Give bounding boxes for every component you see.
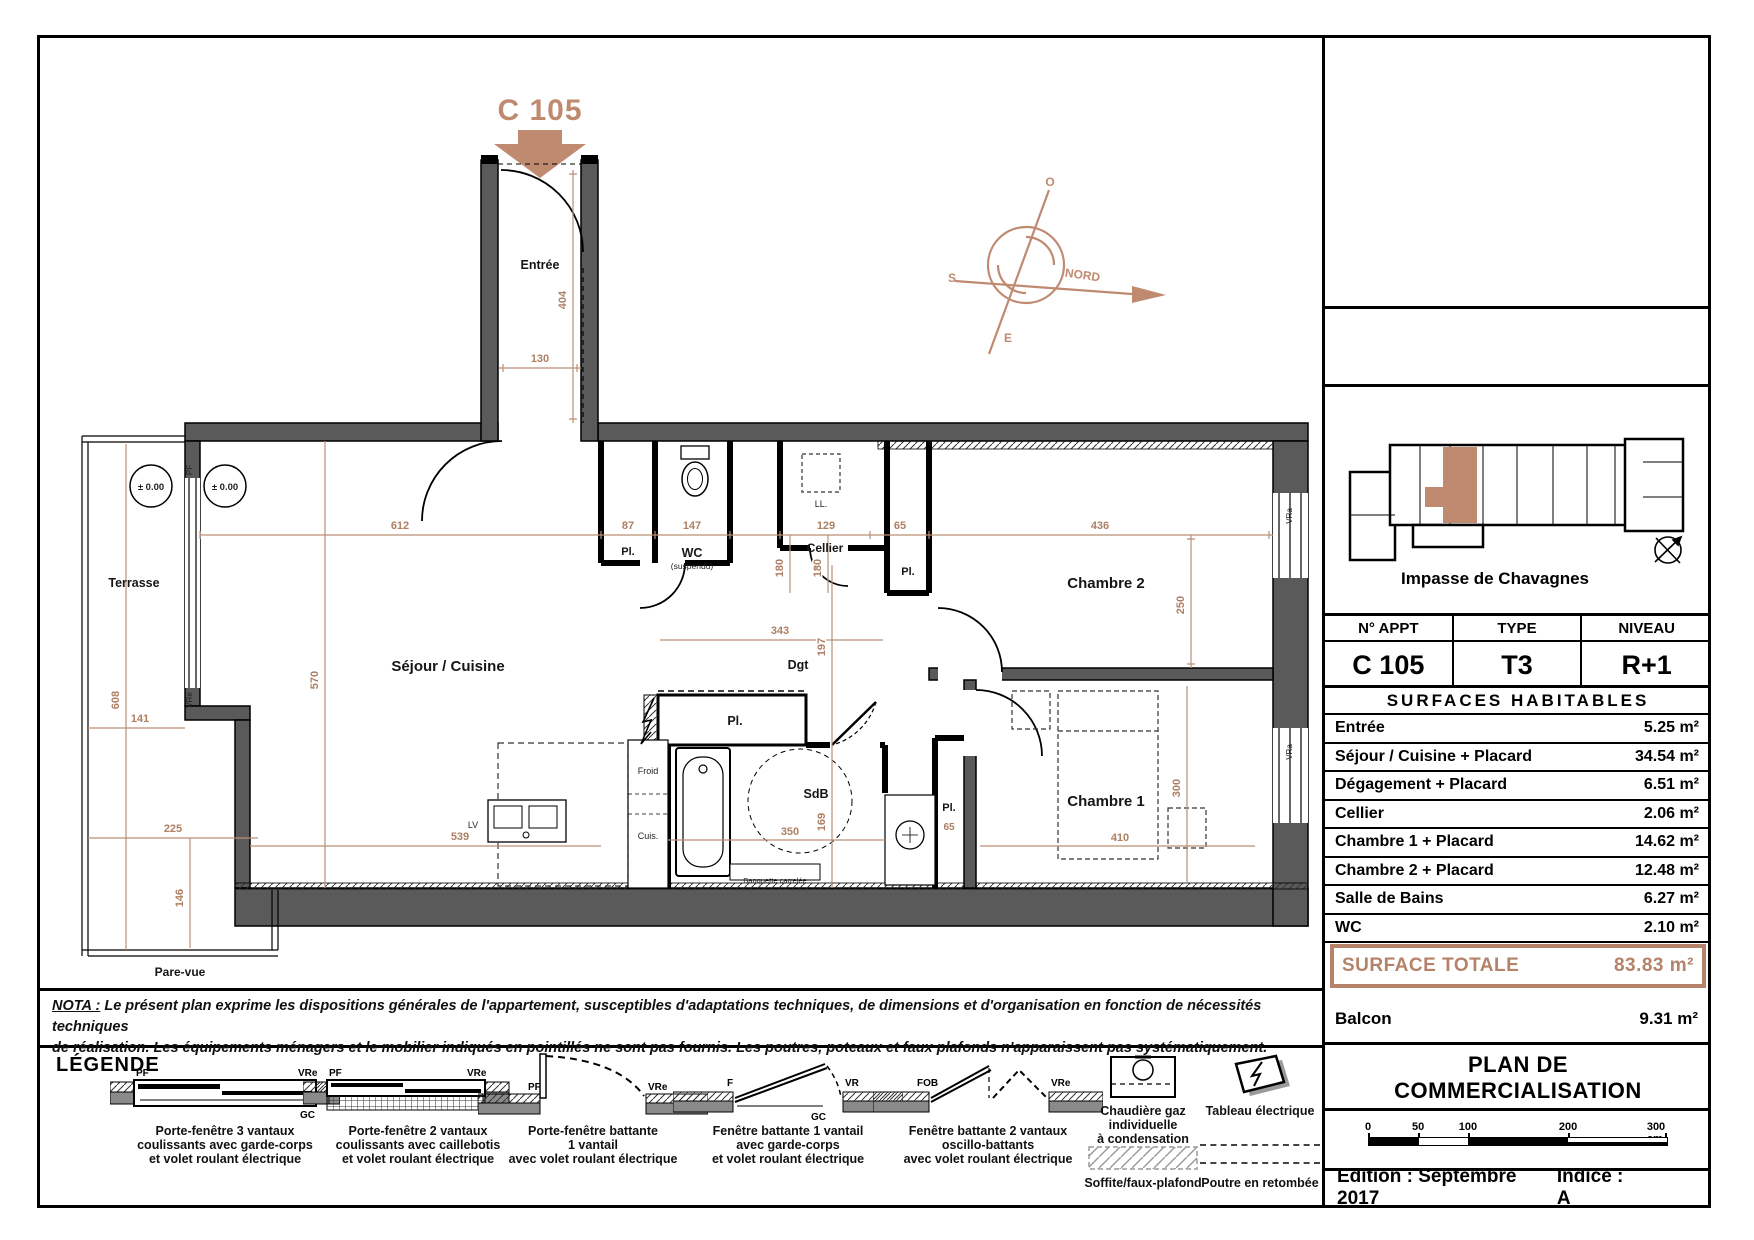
legend-pf-label: PF bbox=[329, 1068, 342, 1079]
scale-bar-section: 0 50 100 200 300 cm bbox=[1325, 1111, 1711, 1171]
legend-caption-electrical: Tableau électrique bbox=[1185, 1104, 1335, 1118]
dim-410: 410 bbox=[1111, 832, 1129, 844]
surface-total-box: SURFACE TOTALE 83.83 m² bbox=[1325, 941, 1711, 991]
site-plan-drawing bbox=[1325, 387, 1711, 567]
dim-65b: 65 bbox=[943, 822, 955, 833]
windows: PF VRe VRa VRa bbox=[185, 465, 1308, 823]
legend-f-label: F bbox=[727, 1078, 733, 1089]
label-cuisine: Cuis. bbox=[638, 831, 659, 841]
legend-beam-dash-1 bbox=[1200, 1144, 1320, 1146]
scale-tick-100: 100 bbox=[1459, 1121, 1477, 1133]
edition-indice: Indice : A bbox=[1557, 1166, 1639, 1210]
washer-icon bbox=[802, 454, 840, 492]
plan-sheet: C 105 O S E NORD bbox=[37, 35, 1711, 1208]
title-block-panel: Impasse de Chavagnes N° APPT TYPE NIVEAU… bbox=[1322, 38, 1708, 1205]
surface-row: Chambre 2 + Placard12.48 m² bbox=[1325, 858, 1711, 887]
dim-146: 146 bbox=[174, 889, 186, 907]
room-label-pl-wc: Pl. bbox=[621, 546, 634, 558]
kitchen-units bbox=[488, 740, 668, 888]
floorplan-drawing: C 105 O S E NORD bbox=[40, 38, 1322, 988]
level-marker: ± 0.00 bbox=[130, 465, 172, 507]
room-labels: Entrée Terrasse Pare-vue Séjour / Cuisin… bbox=[108, 258, 1144, 979]
nota-disclaimer: NOTA : Le présent plan exprime les dispo… bbox=[40, 988, 1322, 1048]
balcony-label: Balcon bbox=[1335, 1009, 1392, 1029]
legend-beam-dash-2 bbox=[1200, 1162, 1320, 1164]
surface-row: Salle de Bains6.27 m² bbox=[1325, 886, 1711, 915]
dim-169: 169 bbox=[816, 813, 828, 831]
surface-row: Entrée5.25 m² bbox=[1325, 715, 1711, 744]
nota-line1: Le présent plan exprime les dispositions… bbox=[52, 998, 1261, 1035]
legend-soffit-swatch bbox=[1088, 1146, 1200, 1172]
window-type-vra-label: VRa bbox=[1285, 508, 1294, 524]
site-compass-icon bbox=[1655, 537, 1681, 563]
dim-180: 180 bbox=[812, 559, 824, 577]
legend-pf-label: PF bbox=[528, 1082, 541, 1093]
main-plan-area: C 105 O S E NORD bbox=[40, 38, 1322, 1205]
legend-caption-beam: Poutre en retombée bbox=[1185, 1176, 1335, 1190]
scale-tick-50: 50 bbox=[1412, 1121, 1424, 1133]
dim-65: 65 bbox=[894, 520, 906, 532]
label-lave-linge: LL. bbox=[815, 499, 828, 509]
room-label-chambre1: Chambre 1 bbox=[1067, 793, 1145, 810]
legend-caption-4: Fenêtre battante 1 vantailavec garde-cor… bbox=[673, 1124, 903, 1166]
room-label-entree: Entrée bbox=[521, 258, 560, 272]
svg-text:± 0.00: ± 0.00 bbox=[138, 482, 164, 493]
balcony-value: 9.31 m² bbox=[1639, 1009, 1698, 1029]
surfaces-list: Entrée5.25 m² Séjour / Cuisine + Placard… bbox=[1325, 715, 1711, 943]
surface-row: Chambre 1 + Placard14.62 m² bbox=[1325, 829, 1711, 858]
street-name: Impasse de Chavagnes bbox=[1325, 569, 1665, 589]
label-pare-vue: Pare-vue bbox=[155, 965, 206, 979]
room-label-pl-sdb: Pl. bbox=[942, 802, 955, 814]
fixtures: ± 0.00 ± 0.00 bbox=[130, 446, 1206, 888]
surface-row: Séjour / Cuisine + Placard34.54 m² bbox=[1325, 744, 1711, 773]
room-label-dgt: Dgt bbox=[788, 658, 810, 672]
label-banquette: Banquette carrelée bbox=[743, 876, 806, 885]
room-label-wc-sub: (suspendu) bbox=[671, 561, 714, 571]
dim-539: 539 bbox=[451, 831, 469, 843]
dim-250: 250 bbox=[1175, 596, 1187, 614]
dim-87: 87 bbox=[622, 520, 634, 532]
surface-total-value: 83.83 m² bbox=[1614, 955, 1694, 977]
svg-text:± 0.00: ± 0.00 bbox=[212, 482, 238, 493]
room-label-cellier: Cellier bbox=[807, 541, 844, 555]
scale-tick-200: 200 bbox=[1559, 1121, 1577, 1133]
dim-197: 197 bbox=[816, 638, 828, 656]
window-type-vre-label: VRe bbox=[185, 692, 194, 708]
site-highlight-unit bbox=[1443, 447, 1477, 523]
compass-north-label: NORD bbox=[1064, 266, 1101, 285]
room-label-sdb: SdB bbox=[804, 787, 829, 801]
legend-vre-label: VRe bbox=[1051, 1078, 1071, 1089]
dim-141: 141 bbox=[131, 713, 149, 725]
surface-row: Cellier2.06 m² bbox=[1325, 801, 1711, 830]
panel-blank-box-2 bbox=[1325, 309, 1711, 387]
bed-furniture bbox=[1012, 691, 1206, 859]
legend-vr-label: VR bbox=[845, 1078, 860, 1089]
window-type-vra-label: VRa bbox=[1285, 744, 1294, 760]
level-marker: ± 0.00 bbox=[204, 465, 246, 507]
dim-570: 570 bbox=[309, 671, 321, 689]
balcony-row: Balcon 9.31 m² bbox=[1325, 995, 1711, 1045]
room-label-sejour: Séjour / Cuisine bbox=[391, 658, 504, 675]
site-key-plan: Impasse de Chavagnes bbox=[1325, 387, 1711, 616]
dim-300: 300 bbox=[1171, 779, 1183, 797]
table-value-niveau: R+1 bbox=[1582, 642, 1711, 688]
apartment-id-table: N° APPT TYPE NIVEAU C 105 T3 R+1 bbox=[1325, 616, 1711, 688]
room-label-pl-dgt: Pl. bbox=[727, 714, 742, 728]
legend-symbol-fenetre2-icon: FOB VRe bbox=[873, 1058, 1103, 1122]
table-header-niveau: NIVEAU bbox=[1582, 616, 1711, 642]
table-value-appt: C 105 bbox=[1325, 642, 1454, 688]
room-label-chambre2: Chambre 2 bbox=[1067, 575, 1145, 592]
legend-electrical-board-icon bbox=[1228, 1052, 1298, 1100]
dim-129: 129 bbox=[817, 520, 835, 532]
dim-225: 225 bbox=[164, 823, 182, 835]
bathtub-icon bbox=[676, 748, 730, 876]
dim-612: 612 bbox=[391, 520, 409, 532]
legend-vre-label: VRe bbox=[648, 1082, 668, 1093]
surface-row: WC2.10 m² bbox=[1325, 915, 1711, 944]
compass-east-label: E bbox=[1004, 331, 1012, 345]
dim-343: 343 bbox=[771, 625, 789, 637]
edition-row: Edition : Septembre 2017 Indice : A bbox=[1325, 1171, 1711, 1205]
turning-circle bbox=[748, 749, 852, 853]
table-header-type: TYPE bbox=[1454, 616, 1583, 642]
surfaces-title: SURFACES HABITABLES bbox=[1325, 688, 1711, 715]
dim-180: 180 bbox=[774, 559, 786, 577]
legend-gc-label: GC bbox=[811, 1112, 826, 1122]
surface-total-label: SURFACE TOTALE bbox=[1342, 955, 1519, 977]
dim-436: 436 bbox=[1091, 520, 1109, 532]
compass-rose-icon: O S E NORD bbox=[948, 175, 1166, 354]
dim-608: 608 bbox=[110, 691, 122, 709]
room-label-pl-cellier: Pl. bbox=[901, 566, 914, 578]
table-value-type: T3 bbox=[1454, 642, 1583, 688]
document-title: PLAN DE COMMERCIALISATION bbox=[1325, 1045, 1711, 1111]
compass-south-label: S bbox=[948, 271, 956, 285]
exterior-walls bbox=[185, 155, 1308, 926]
dim-404: 404 bbox=[557, 290, 569, 309]
dim-350: 350 bbox=[781, 826, 799, 838]
washbasin-icon bbox=[885, 795, 935, 885]
toilet-icon bbox=[681, 446, 709, 496]
legend: LÉGENDE PF VRe GC bbox=[40, 1048, 1322, 1205]
edition-date: Edition : Septembre 2017 bbox=[1337, 1166, 1557, 1210]
compass-west-label: O bbox=[1045, 175, 1054, 189]
room-label-wc: WC bbox=[682, 546, 703, 560]
scale-tick-0: 0 bbox=[1365, 1121, 1371, 1133]
surface-row: Dégagement + Placard6.51 m² bbox=[1325, 772, 1711, 801]
label-lave-vaisselle: LV bbox=[468, 820, 478, 830]
dim-147: 147 bbox=[683, 520, 701, 532]
dim-130: 130 bbox=[531, 353, 549, 365]
legend-pf-label: PF bbox=[136, 1068, 149, 1079]
window-type-pf-label: PF bbox=[185, 465, 194, 475]
legend-symbol-fenetre1-icon: F VR GC bbox=[673, 1058, 903, 1122]
legend-caption-5: Fenêtre battante 2 vantauxoscillo-battan… bbox=[873, 1124, 1103, 1166]
label-froid: Froid bbox=[638, 766, 659, 776]
nota-label: NOTA : bbox=[52, 998, 100, 1014]
legend-boiler-icon bbox=[1103, 1054, 1183, 1102]
unit-code-title: C 105 bbox=[497, 94, 582, 127]
table-header-appt: N° APPT bbox=[1325, 616, 1454, 642]
room-label-terrasse: Terrasse bbox=[108, 576, 159, 590]
panel-blank-box-1 bbox=[1325, 38, 1711, 309]
legend-fob-label: FOB bbox=[917, 1078, 938, 1089]
scale-bar: 0 50 100 200 300 cm bbox=[1368, 1121, 1668, 1161]
